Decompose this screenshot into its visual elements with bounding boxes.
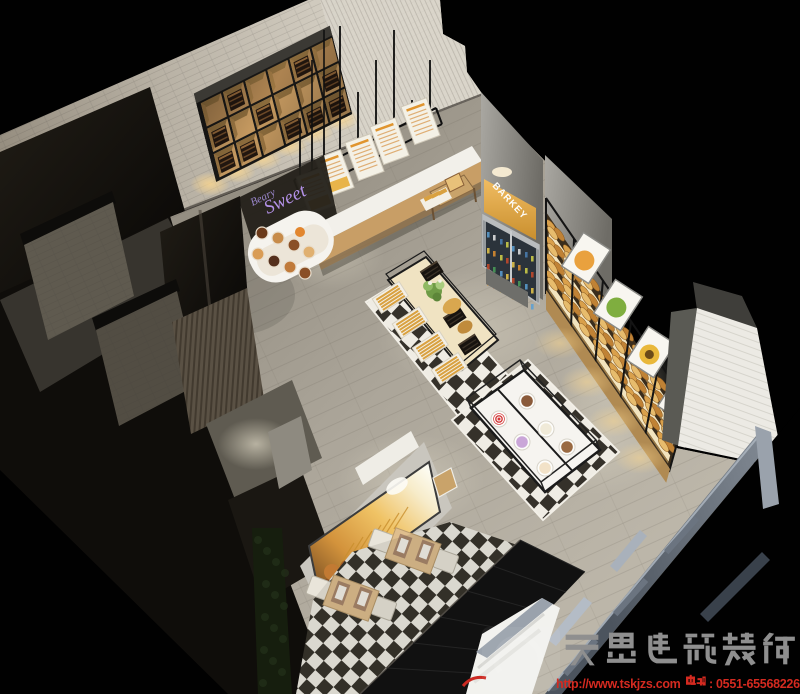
- svg-text:http://www.tskjzs.com: http://www.tskjzs.com: [556, 677, 681, 691]
- svg-text:: 0551-65568226: : 0551-65568226: [709, 677, 800, 691]
